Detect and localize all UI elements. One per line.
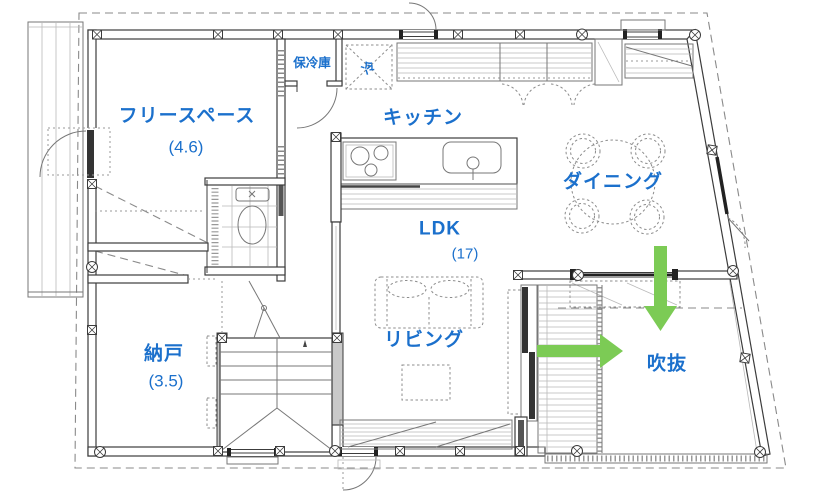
room-label-void: 吹抜 [647, 355, 687, 374]
room-label-ldk: LDK [419, 220, 461, 239]
room-label-cold-storage: 保冷庫 [293, 57, 331, 70]
void-north-wall [515, 269, 742, 308]
living-table [402, 365, 450, 400]
west-door [40, 128, 110, 180]
staircase [220, 281, 332, 452]
room-size-ldk: (17) [452, 247, 479, 262]
living-south-deck [340, 420, 512, 449]
south-door [338, 447, 380, 490]
corridor-door-marks [88, 186, 208, 276]
floor-plan: フリースペース (4.6) 保冷庫 冷 キッチン ダイニング LDK (17) … [0, 0, 830, 491]
room-label-kitchen: キッチン [383, 109, 463, 128]
south-window [227, 447, 278, 464]
floor-plan-drawing [0, 0, 830, 491]
left-porch-deck [28, 22, 83, 297]
room-label-living: リビング [384, 331, 464, 350]
island-side-wall [331, 133, 343, 452]
kitchen-cupboard-counter [397, 43, 595, 105]
back-door [399, 3, 438, 39]
kitchen-north-window [595, 39, 622, 85]
room-label-free-space: フリースペース [119, 107, 256, 126]
room-size-free-space: (4.6) [169, 139, 204, 156]
living-void-partition [508, 285, 602, 456]
room-label-dining: ダイニング [563, 173, 663, 192]
north-east-counter [625, 44, 693, 78]
room-label-storeroom: 納戸 [144, 345, 184, 364]
north-window [621, 20, 665, 39]
cold-storage-room [285, 39, 342, 128]
green-arrow-down-icon [644, 246, 677, 331]
freespace-kitchen-wall [277, 39, 285, 281]
kitchen-island [333, 138, 517, 209]
room-size-storeroom: (3.5) [149, 373, 184, 390]
sofa [375, 277, 483, 328]
toilet-room [205, 178, 285, 275]
